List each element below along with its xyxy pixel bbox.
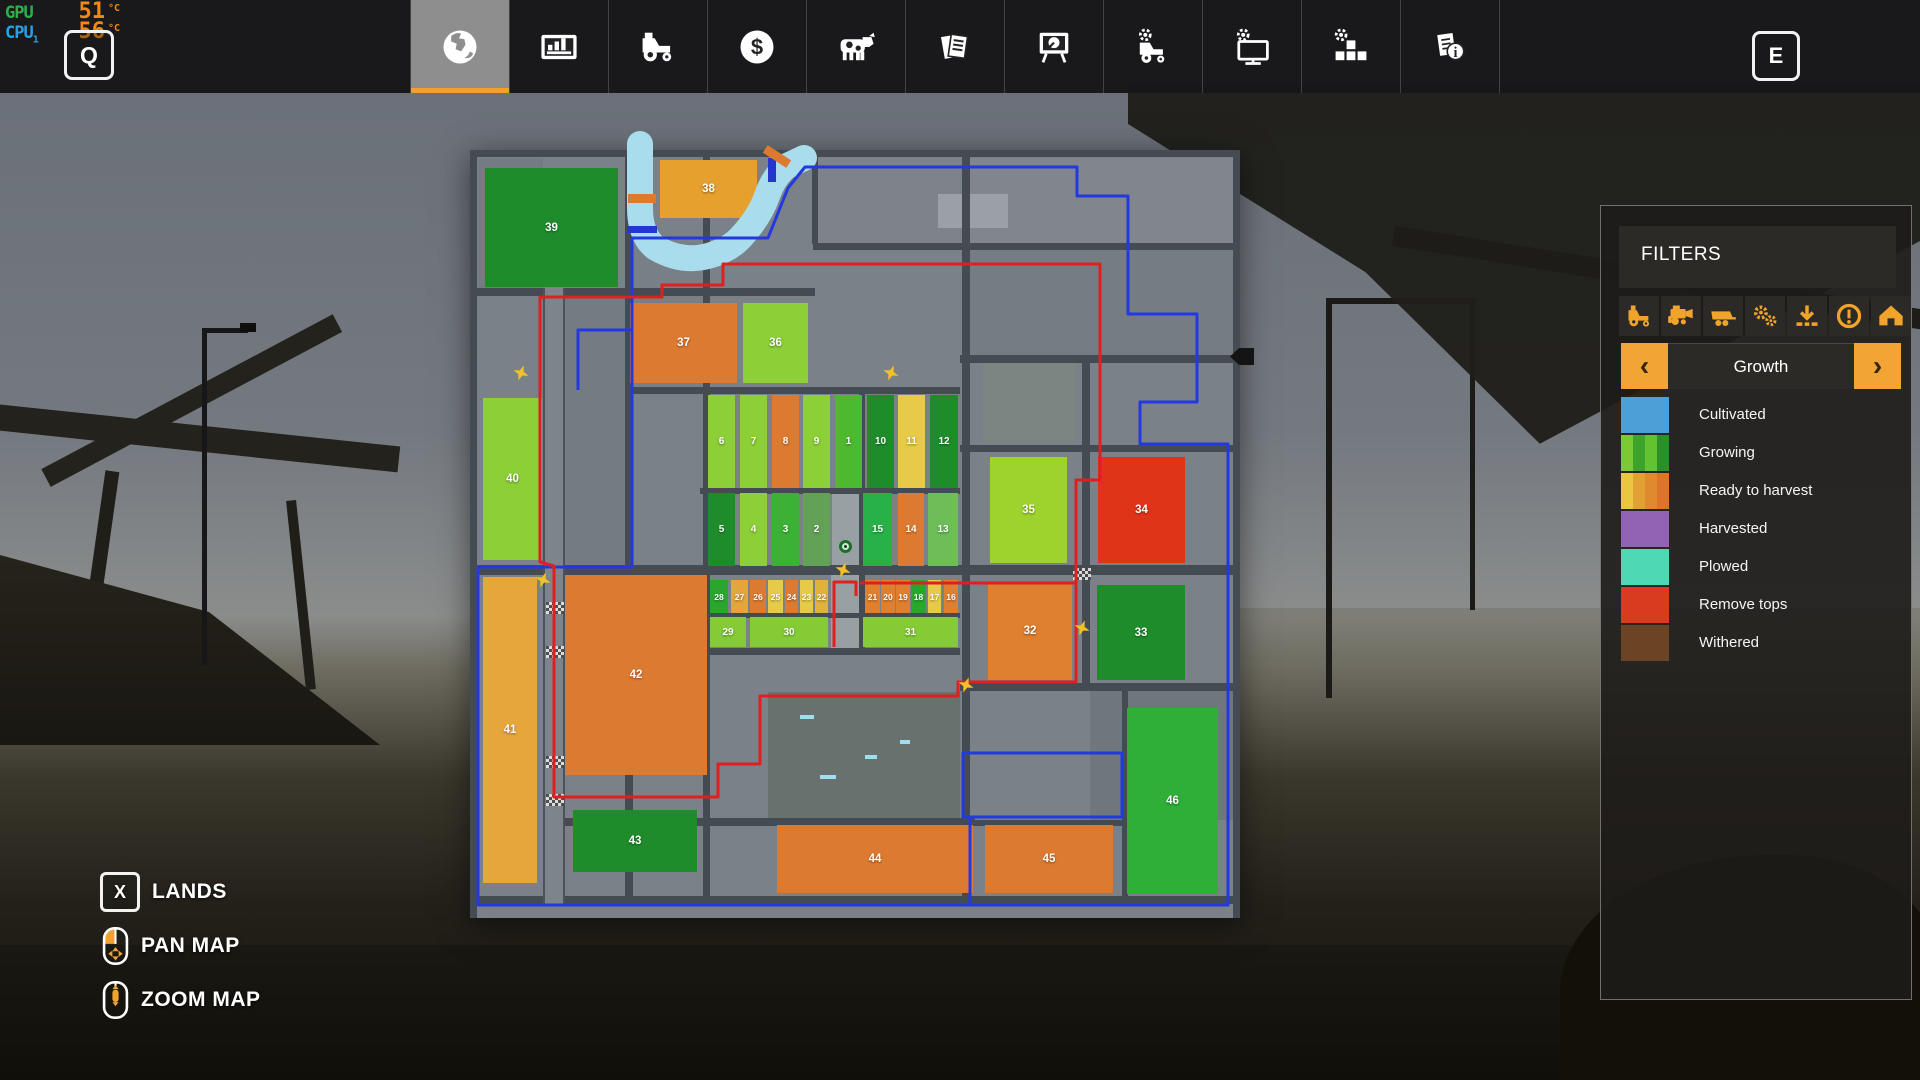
map-field-36[interactable]: 36 [743,303,808,383]
map-road [960,355,1240,363]
dam-marker [768,158,776,182]
map-field-42[interactable]: 42 [565,575,707,775]
map-road [1082,355,1090,691]
legend-row: Ready to harvest [1621,472,1901,509]
map-field-34[interactable]: 34 [1098,457,1185,563]
field-number: 26 [753,592,762,602]
map-field-5[interactable]: 5 [708,493,735,566]
tab-production[interactable] [1005,0,1104,93]
map-field-24[interactable]: 24 [785,580,798,613]
key-hint-x: X [100,872,140,912]
map-road [700,648,960,655]
map-road [625,387,960,394]
top-menu-bar: $i [0,0,1920,93]
map-water-decor [865,755,877,759]
svg-text:i: i [1454,44,1458,60]
street-lamp-arm [202,328,248,333]
tab-animals[interactable] [807,0,906,93]
field-number: 34 [1135,504,1148,516]
filter-gears-icon [1751,302,1779,330]
map-field-4[interactable]: 4 [740,493,767,566]
globe-icon [438,25,482,69]
legend-label: Cultivated [1699,406,1766,423]
map-crossing-marks [546,794,564,806]
map-road [960,445,1240,452]
field-number: 1 [846,436,852,447]
map-parcel [832,493,862,567]
legend-row: Remove tops [1621,586,1901,623]
map-parcel [565,288,625,565]
pole-structure [1470,300,1475,610]
cpu-label: CPU1 [5,24,63,49]
filter-button-trailers[interactable] [1703,296,1743,336]
growth-selector: ‹ Growth › [1621,343,1901,389]
lands-hint: X LANDS [100,872,227,912]
map-field-17[interactable]: 17 [928,580,941,613]
mouse-pan-icon [102,926,129,966]
map-field-35[interactable]: 35 [990,457,1067,563]
map-parcel [831,575,861,648]
key-hint-q: Q [64,30,114,80]
field-number: 36 [769,337,782,349]
filter-trailer-icon [1709,302,1737,330]
map-field-6[interactable]: 6 [708,395,735,488]
tab-map[interactable] [410,0,510,93]
map-crossing-marks [1073,568,1091,580]
lands-label: LANDS [152,880,227,904]
filter-download-icon [1793,302,1821,330]
legend-swatch [1621,587,1669,623]
map-field-20[interactable]: 20 [881,580,895,613]
legend-row: Withered [1621,624,1901,661]
field-number: 45 [1043,853,1056,865]
map-field-43[interactable]: 43 [573,810,697,872]
zoom-map-label: ZOOM MAP [141,988,261,1012]
garage-icon [1131,25,1175,69]
growth-selector-label: Growth [1668,343,1854,389]
field-number: 21 [868,592,877,602]
map-field-3[interactable]: 3 [772,493,799,566]
filter-icon-row [1619,296,1911,336]
field-number: 46 [1166,795,1179,807]
blocks-icon [1329,25,1373,69]
map-field-25[interactable]: 25 [768,580,783,613]
legend-row: Cultivated [1621,396,1901,433]
gpu-label: GPU [5,4,63,23]
field-number: 37 [677,337,690,349]
filter-house-icon [1877,302,1905,330]
tractor-icon [636,25,680,69]
map-field-7[interactable]: 7 [740,395,767,488]
map-road [812,150,818,244]
map-field-18[interactable]: 18 [911,580,926,613]
map-parcel [970,158,1233,243]
tab-contracts[interactable] [906,0,1005,93]
filter-button-harvesters[interactable] [1661,296,1701,336]
map-road [625,150,633,896]
map-water-decor [820,775,836,779]
tab-help[interactable]: i [1401,0,1500,93]
field-number: 24 [787,592,796,602]
map-water-decor [800,715,814,719]
shed-silhouette [0,555,380,745]
map-road [470,150,477,918]
legend-row: Growing [1621,434,1901,471]
map-field-28[interactable]: 28 [710,580,728,613]
map-field-39[interactable]: 39 [485,168,618,287]
field-number: 9 [814,436,820,447]
help-icon: i [1428,25,1472,69]
map-parcel [938,194,1008,228]
field-number: 39 [545,222,558,234]
pole-structure [1326,298,1332,698]
map-field-19[interactable]: 19 [896,580,910,613]
production-icon [1032,25,1076,69]
filters-title: FILTERS [1641,244,1721,266]
filter-button-tractors[interactable] [1619,296,1659,336]
field-number: 14 [905,524,916,535]
map-field-22[interactable]: 22 [815,580,828,613]
map-field-8[interactable]: 8 [772,395,799,488]
player-marker [839,540,852,553]
map-field-27[interactable]: 27 [731,580,748,613]
map-field-26[interactable]: 26 [750,580,766,613]
map-field-38[interactable]: 38 [660,160,757,218]
legend-swatch [1621,549,1669,585]
field-number: 28 [714,592,723,602]
growth-prev-button[interactable]: ‹ [1621,343,1668,389]
legend-swatch [1621,473,1669,509]
mouse-zoom-icon [102,980,129,1020]
field-number: 15 [872,524,883,535]
filter-harvester-icon [1667,302,1695,330]
menu-tabs: $i [410,0,1500,93]
street-lamp [202,330,207,665]
map-road [1233,150,1240,918]
map-crossing-marks [546,756,564,768]
map-field-21[interactable]: 21 [865,580,880,613]
field-number: 30 [783,627,794,638]
map-field-31[interactable]: 31 [863,617,958,647]
legend-row: Harvested [1621,510,1901,547]
map-field-29[interactable]: 29 [710,617,746,647]
legend-label: Withered [1699,634,1759,651]
field-number: 3 [783,524,789,535]
legend-label: Remove tops [1699,596,1787,613]
map-crossing-marks [546,602,564,614]
field-number: 32 [1024,625,1037,637]
field-number: 6 [719,436,725,447]
legend-label: Plowed [1699,558,1748,575]
map-road [470,288,815,296]
filter-button-warnings[interactable] [1829,296,1869,336]
field-number: 19 [898,592,907,602]
map-parcel [970,250,1233,355]
map-field-46[interactable]: 46 [1127,708,1218,894]
pan-map-hint: PAN MAP [102,926,240,966]
growth-next-button[interactable]: › [1854,343,1901,389]
waypoint-marker [881,363,902,384]
contracts-icon [933,25,977,69]
field-number: 10 [875,436,886,447]
map-road [470,565,1240,575]
map-field-9[interactable]: 9 [803,395,830,488]
filter-tractor-icon [1625,302,1653,330]
field-number: 13 [937,524,948,535]
map-field-44[interactable]: 44 [777,825,973,893]
field-number: 27 [735,592,744,602]
field-number: 44 [869,853,882,865]
map-field-33[interactable]: 33 [1097,585,1185,680]
field-number: 25 [771,592,780,602]
tab-finances[interactable]: $ [708,0,807,93]
field-number: 29 [722,627,733,638]
tab-statistics[interactable] [510,0,609,93]
wooden-beam [41,314,342,487]
growth-legend: CultivatedGrowingReady to harvestHarvest… [1621,396,1901,662]
legend-swatch [1621,435,1669,471]
map-parcel [768,692,960,818]
gpu-temp-unit: °C [108,0,120,18]
finances-icon: $ [735,25,779,69]
field-number: 20 [883,592,892,602]
street-lamp-head [240,323,256,332]
legend-row: Plowed [1621,548,1901,585]
legend-swatch [1621,511,1669,547]
map-field-2[interactable]: 2 [803,493,830,566]
field-number: 22 [817,592,826,602]
pole-structure [1326,298,1476,304]
map-road [962,150,970,896]
map-water-decor [900,740,910,744]
field-number: 42 [630,669,643,681]
map-field-40[interactable]: 40 [483,398,542,560]
map-field-23[interactable]: 23 [800,580,813,613]
field-number: 40 [506,473,519,485]
field-number: 41 [504,724,517,736]
wooden-post [71,470,120,720]
pan-map-label: PAN MAP [141,934,240,958]
map-road [543,288,565,904]
filter-button-implements[interactable] [1745,296,1785,336]
game-map[interactable]: 3938373640414243444546353432336789110111… [470,150,1240,918]
filter-button-loading[interactable] [1787,296,1827,336]
legend-swatch [1621,625,1669,661]
field-number: 4 [751,524,757,535]
field-number: 7 [751,436,757,447]
stats-icon [537,25,581,69]
map-road [470,896,1240,904]
map-field-1[interactable]: 1 [835,395,862,488]
map-field-15[interactable]: 15 [863,493,892,566]
field-number: 31 [905,627,916,638]
map-road [470,150,1240,157]
map-field-12[interactable]: 12 [930,395,958,488]
field-number: 11 [906,436,917,447]
tab-system[interactable] [1203,0,1302,93]
field-number: 38 [702,183,715,195]
filter-button-buildings[interactable] [1871,296,1911,336]
legend-label: Ready to harvest [1699,482,1812,499]
field-number: 16 [946,592,955,602]
wooden-post [286,500,316,690]
field-number: 18 [914,592,923,602]
field-number: 35 [1022,504,1035,516]
wooden-canopy [0,402,400,473]
field-number: 8 [783,436,789,447]
field-number: 33 [1135,627,1148,639]
map-field-30[interactable]: 30 [750,617,828,647]
map-crossing-marks [546,646,564,658]
map-field-45[interactable]: 45 [985,825,1113,893]
field-number: 5 [719,524,725,535]
map-road [813,243,1240,250]
map-field-16[interactable]: 16 [944,580,958,613]
field-number: 2 [814,524,820,535]
field-number: 43 [629,835,642,847]
map-road [960,683,1240,691]
legend-label: Growing [1699,444,1755,461]
legend-label: Harvested [1699,520,1767,537]
field-number: 23 [802,592,811,602]
svg-text:$: $ [751,34,763,59]
map-field-32[interactable]: 32 [988,582,1072,680]
map-field-14[interactable]: 14 [898,493,924,566]
tab-modules[interactable] [1302,0,1401,93]
pc-icon [1230,25,1274,69]
filters-panel: FILTERS ‹ Growth › CultivatedGrowingRead… [1600,205,1912,1000]
tab-garage[interactable] [1104,0,1203,93]
map-field-10[interactable]: 10 [867,395,894,488]
tab-vehicles[interactable] [609,0,708,93]
legend-swatch [1621,397,1669,433]
map-field-41[interactable]: 41 [483,577,537,883]
waypoint-marker [511,363,532,384]
key-hint-e: E [1752,31,1800,81]
animals-icon [834,25,878,69]
map-field-11[interactable]: 11 [898,395,925,488]
map-screen: $i GPU 51 °C CPU1 56 °C Q E 393837364041… [0,0,1920,1080]
field-number: 17 [930,592,939,602]
filter-warning-icon [1835,302,1863,330]
map-field-13[interactable]: 13 [928,493,958,566]
zoom-map-hint: ZOOM MAP [102,980,261,1020]
map-field-37[interactable]: 37 [630,303,737,383]
map-parcel [983,363,1075,443]
field-number: 12 [938,436,949,447]
